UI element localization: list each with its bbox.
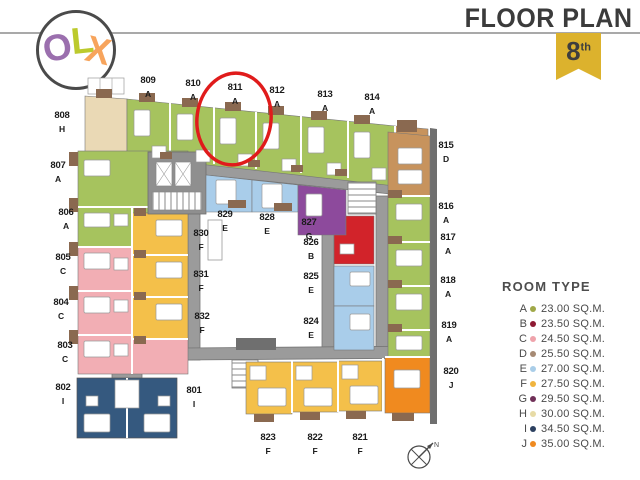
unit-label-813: 813A: [317, 88, 332, 114]
unit-label-806: 806A: [58, 206, 73, 232]
legend-dot-H: [530, 411, 536, 417]
right-wall: [430, 128, 437, 424]
unit-label-814: 814A: [364, 91, 379, 117]
legend-dot-G: [530, 396, 536, 402]
unit-label-802: 802I: [55, 381, 70, 407]
unit-label-830: 830F: [193, 227, 208, 253]
unit-label-824: 824E: [303, 315, 318, 341]
compass: N: [408, 442, 439, 468]
unit-label-811: 811A: [228, 81, 243, 107]
unit-label-808: 808H: [54, 109, 69, 135]
legend-dot-J: [530, 441, 536, 447]
unit-label-804: 804C: [53, 296, 68, 322]
legend-item-E: E27.00 SQ.M.: [502, 361, 634, 376]
legend-item-A: A23.00 SQ.M.: [502, 301, 634, 316]
legend-item-H: H30.00 SQ.M.: [502, 406, 634, 421]
compass-north-label: N: [434, 442, 439, 449]
unit-label-825: 825E: [303, 270, 318, 296]
block-801-802: [77, 378, 177, 438]
legend-dot-A: [530, 306, 536, 312]
unit-label-817: 817A: [440, 231, 455, 257]
room-type-legend: ROOM TYPE A23.00 SQ.M.B23.50 SQ.M.C24.50…: [502, 279, 634, 451]
legend-item-C: C24.50 SQ.M.: [502, 331, 634, 346]
unit-label-827: 827G: [301, 216, 316, 242]
unit-label-805: 805C: [55, 251, 70, 277]
unit-label-821: 821F: [352, 431, 367, 457]
unit-label-828: 828E: [259, 211, 274, 237]
legend-dot-D: [530, 351, 536, 357]
unit-label-818: 818A: [440, 274, 455, 300]
unit-label-801: 801I: [186, 384, 201, 410]
legend-dot-I: [530, 426, 536, 432]
legend-item-D: D25.50 SQ.M.: [502, 346, 634, 361]
legend-item-G: G29.50 SQ.M.: [502, 391, 634, 406]
unit-label-832: 832F: [194, 310, 209, 336]
unit-label-815: 815D: [438, 139, 453, 165]
legend-dot-B: [530, 321, 536, 327]
legend-item-F: F27.50 SQ.M.: [502, 376, 634, 391]
unit-label-820: 820J: [443, 365, 458, 391]
legend-dot-E: [530, 366, 536, 372]
unit-label-823: 823F: [260, 431, 275, 457]
floor-plan-page: OLX FLOOR PLAN 8th: [0, 0, 640, 480]
unit-label-816: 816A: [438, 200, 453, 226]
room-808: [85, 96, 127, 156]
legend-item-I: I34.50 SQ.M.: [502, 421, 634, 436]
unit-label-807: 807A: [50, 159, 65, 185]
unit-label-812: 812A: [269, 84, 284, 110]
legend-item-J: J35.00 SQ.M.: [502, 436, 634, 451]
unit-label-803: 803C: [57, 339, 72, 365]
legend-title: ROOM TYPE: [502, 279, 634, 294]
unit-label-831: 831F: [193, 268, 208, 294]
unit-label-819: 819A: [441, 319, 456, 345]
unit-label-822: 822F: [307, 431, 322, 457]
legend-items: A23.00 SQ.M.B23.50 SQ.M.C24.50 SQ.M.D25.…: [502, 301, 634, 451]
legend-dot-C: [530, 336, 536, 342]
unit-label-810: 810A: [185, 77, 200, 103]
legend-dot-F: [530, 381, 536, 387]
unit-label-809: 809A: [140, 74, 155, 100]
legend-item-B: B23.50 SQ.M.: [502, 316, 634, 331]
unit-label-829: 829E: [217, 208, 232, 234]
